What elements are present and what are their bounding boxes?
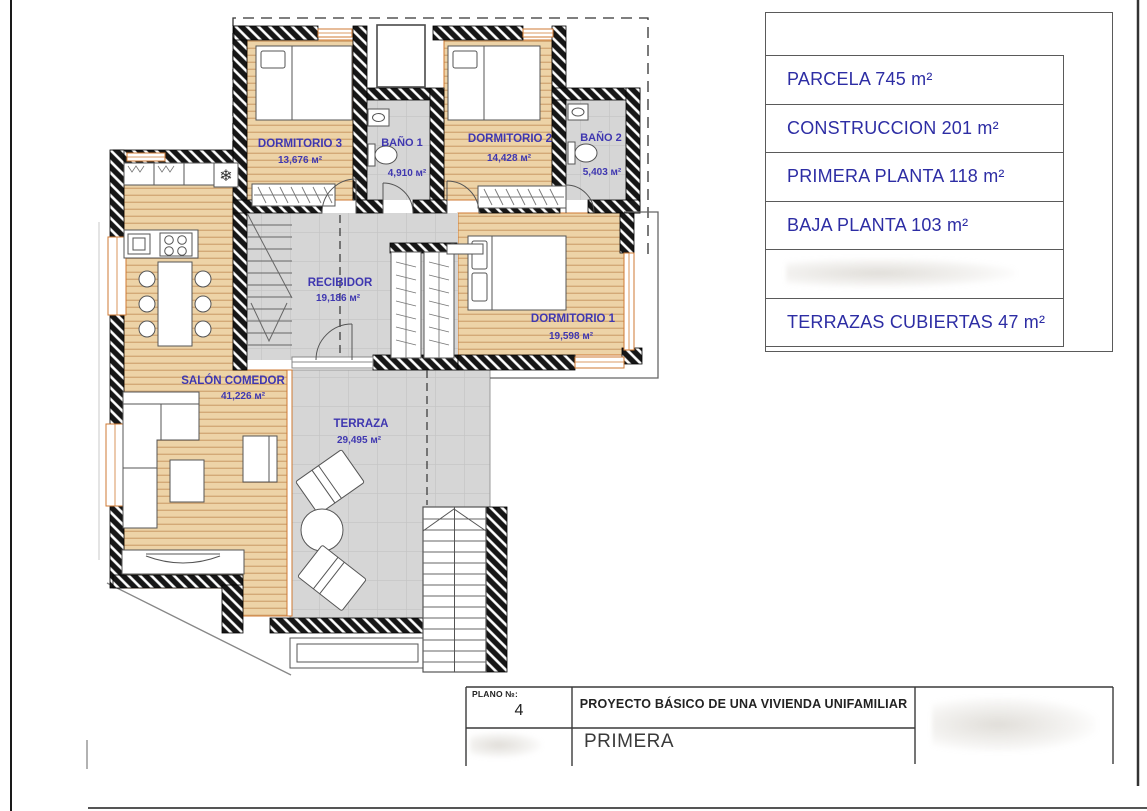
legend-text: PARCELA 745 m²: [787, 69, 933, 90]
planter: [290, 638, 425, 668]
area-bano1: 4,910 м²: [388, 168, 427, 179]
legend-row-primera-planta: PRIMERA PLANTA 118 m²: [766, 153, 1063, 202]
legend-row-construccion: CONSTRUCCION 201 m²: [766, 105, 1063, 154]
erased-text-smudge: [786, 258, 1016, 288]
erased-stamp-smudge: [932, 697, 1097, 752]
closet-dormitorio2: [478, 186, 566, 208]
toilet-bano2: [568, 142, 597, 164]
coffee-table: [170, 460, 204, 502]
label-dormitorio1: DORMITORIO 1: [531, 313, 616, 325]
legend-row-baja-planta: BAJA PLANTA 103 m²: [766, 202, 1063, 251]
label-salon: SALÓN COMEDOR: [181, 374, 285, 387]
plano-number-value: 4: [466, 702, 572, 720]
sliding-door: [292, 357, 373, 368]
kitchen-counter-top: [124, 163, 214, 185]
exterior-stair: [423, 507, 486, 672]
label-recibidor: RECIBIDOR: [308, 277, 373, 289]
skylight: [377, 25, 425, 87]
label-bano2: BAÑO 2: [580, 131, 622, 144]
bed-dormitorio2: [448, 46, 540, 120]
area-dormitorio2: 14,428 м²: [487, 153, 532, 164]
closet-dormitorio3: [252, 184, 335, 206]
project-title: PROYECTO BÁSICO DE UNA VIVIENDA UNIFAMIL…: [572, 697, 915, 711]
legend-text: TERRAZAS CUBIERTAS 47 m²: [787, 312, 1045, 333]
area-terraza: 29,495 м²: [337, 435, 382, 446]
plano-number-label: PLANO №:: [472, 689, 518, 699]
legend-text: PRIMERA PLANTA 118 m²: [787, 166, 1005, 187]
legend-text: BAJA PLANTA 103 m²: [787, 215, 968, 236]
legend-row-parcela: PARCELA 745 m²: [766, 56, 1063, 105]
area-legend: PARCELA 745 m² CONSTRUCCION 201 m² PRIME…: [765, 55, 1064, 347]
label-dormitorio2: DORMITORIO 2: [468, 133, 552, 145]
label-dormitorio3: DORMITORIO 3: [258, 138, 342, 150]
label-terraza: TERRAZA: [334, 418, 389, 430]
bed-dormitorio3: [256, 46, 352, 120]
sink-bano2: [568, 104, 588, 120]
area-bano2: 5,403 м²: [583, 167, 622, 178]
hall-shelf: [447, 244, 483, 254]
dining-table: [139, 262, 211, 346]
armchair: [243, 436, 277, 482]
tv-cabinet: [122, 550, 244, 574]
erased-note-smudge: [470, 732, 542, 758]
area-dormitorio3: 13,676 м²: [278, 155, 323, 166]
legend-text: CONSTRUCCION 201 m²: [787, 118, 999, 139]
kitchen-counter-side: [124, 230, 198, 258]
snowflake-icon: ❄: [219, 168, 232, 185]
wardrobe-left: [391, 252, 421, 358]
legend-row-terrazas: TERRAZAS CUBIERTAS 47 m²: [766, 299, 1063, 347]
label-bano1: BAÑO 1: [381, 136, 423, 149]
sink-bano1: [368, 109, 389, 126]
sheet-name: PRIMERA: [584, 731, 674, 753]
drawing-sheet: ❄ DORMITORIO 3 13,676 м² BAÑO 1 4,910 м²…: [0, 0, 1147, 811]
area-dormitorio1: 19,598 м²: [549, 331, 594, 342]
round-table: [301, 509, 343, 551]
wardrobe-right: [424, 252, 454, 358]
area-salon: 41,226 м²: [221, 391, 266, 402]
area-recibidor: 19,186 м²: [316, 293, 361, 304]
legend-row-erased: [766, 250, 1063, 299]
